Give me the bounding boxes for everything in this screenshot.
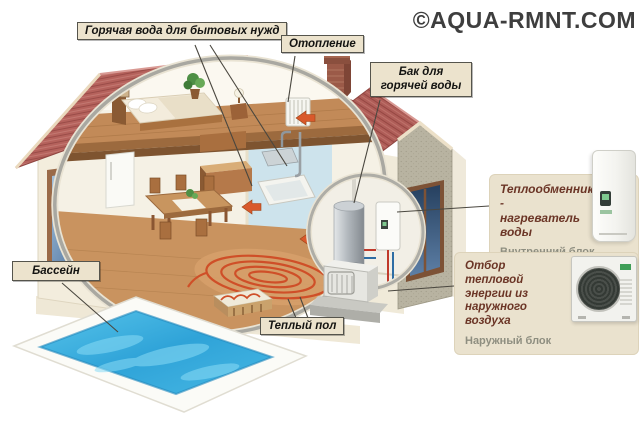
dining-chairs-back xyxy=(150,175,214,193)
hot-water-tank xyxy=(334,201,364,270)
label-pool: Бассейн xyxy=(12,261,100,281)
callout-indoor-title: Теплообменник - нагреватель воды xyxy=(500,182,582,240)
label-hot-water: Горячая вода для бытовых нужд xyxy=(77,22,287,40)
radiator xyxy=(286,98,310,126)
callout-outdoor-title: Отбор тепловой энергии из наружного возд… xyxy=(465,260,564,329)
outdoor-unit-fan xyxy=(576,266,622,312)
indoor-unit-photo xyxy=(592,150,636,242)
heat-pump-diagram: ©AQUA-RMNT.COM Горячая вода для бытовых … xyxy=(0,0,640,440)
indoor-unit-logo xyxy=(600,210,612,214)
indoor-heat-exchanger xyxy=(376,202,400,250)
watermark: ©AQUA-RMNT.COM xyxy=(413,7,636,34)
label-hot-water-tank: Бак для горячей воды xyxy=(370,62,472,97)
indoor-unit-display xyxy=(600,191,611,206)
label-heating: Отопление xyxy=(281,35,364,53)
callout-outdoor-subtitle: Наружный блок xyxy=(465,335,564,347)
outdoor-unit-photo xyxy=(571,256,637,322)
outdoor-unit-logo xyxy=(620,264,631,270)
label-warm-floor: Теплый пол xyxy=(260,317,344,335)
fridge xyxy=(106,152,134,208)
